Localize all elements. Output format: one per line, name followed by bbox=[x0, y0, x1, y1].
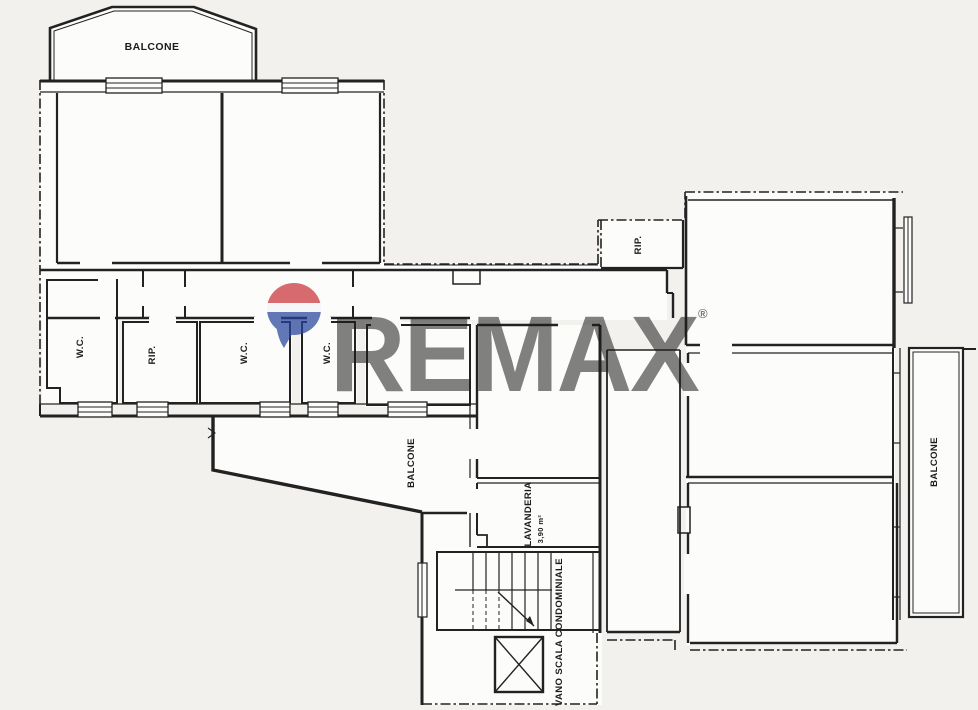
watermark-text: REMAX bbox=[330, 293, 700, 414]
window-bottom-3 bbox=[260, 402, 290, 417]
label-wc-left: W.C. bbox=[75, 336, 86, 358]
label-lavanderia: LAVANDERIA bbox=[523, 482, 534, 547]
window-stair-west bbox=[418, 563, 427, 617]
label-balcone-right: BALCONE bbox=[929, 437, 940, 487]
label-balcone-lower: BALCONE bbox=[406, 438, 417, 488]
floor-plan-drawing: BALCONE W.C. RIP. W.C. W.C. RIP. BALCONE… bbox=[0, 0, 978, 710]
window-bottom-2 bbox=[137, 402, 168, 417]
window-top-2 bbox=[282, 78, 338, 93]
label-lavanderia-area: 3,90 m² bbox=[536, 515, 545, 544]
label-balcone-top: BALCONE bbox=[125, 41, 180, 53]
watermark-registered-mark: ® bbox=[698, 306, 708, 321]
window-bottom-1 bbox=[78, 402, 112, 417]
floorplan-sheet: BALCONE W.C. RIP. W.C. W.C. RIP. BALCONE… bbox=[0, 0, 978, 710]
label-rip-left: RIP. bbox=[147, 346, 158, 365]
window-top-1 bbox=[106, 78, 162, 93]
window-top-right-east bbox=[904, 217, 912, 303]
label-vano-scala: VANO SCALA CONDOMINIALE bbox=[554, 558, 565, 706]
label-wc-center: W.C. bbox=[239, 342, 250, 364]
remax-watermark: REMAX ® bbox=[266, 282, 708, 414]
label-rip-right: RIP. bbox=[633, 236, 644, 255]
